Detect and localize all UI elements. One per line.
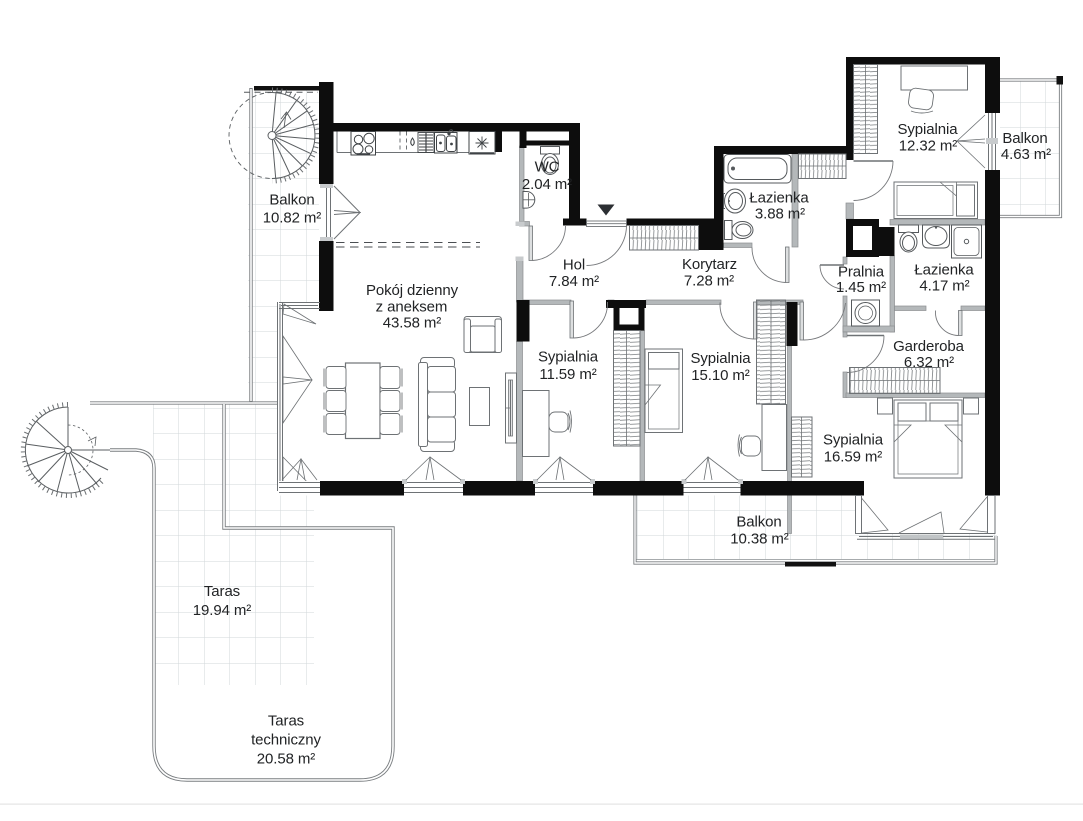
- svg-text:10.82 m²: 10.82 m²: [263, 209, 321, 226]
- svg-text:Sypialnia: Sypialnia: [691, 350, 752, 367]
- svg-text:Sypialnia: Sypialnia: [898, 121, 959, 138]
- svg-text:Balkon: Balkon: [736, 514, 781, 531]
- svg-text:Sypialnia: Sypialnia: [538, 349, 599, 366]
- svg-text:4.63 m²: 4.63 m²: [1001, 146, 1051, 163]
- svg-text:10.38 m²: 10.38 m²: [730, 531, 788, 548]
- svg-text:20.58 m²: 20.58 m²: [257, 751, 315, 768]
- svg-text:2.04 m²: 2.04 m²: [522, 176, 572, 193]
- svg-text:WC: WC: [535, 159, 560, 176]
- svg-text:Pokój dzienny: Pokój dzienny: [366, 282, 459, 299]
- svg-text:Hol: Hol: [563, 257, 585, 274]
- svg-text:Taras: Taras: [204, 583, 240, 600]
- svg-text:techniczny: techniczny: [251, 732, 321, 749]
- svg-text:12.32 m²: 12.32 m²: [899, 138, 957, 155]
- svg-text:z aneksem: z aneksem: [376, 298, 448, 315]
- svg-text:Korytarz: Korytarz: [682, 256, 737, 273]
- svg-text:6.32 m²: 6.32 m²: [904, 354, 954, 371]
- svg-text:Taras: Taras: [268, 713, 304, 730]
- svg-text:4.17 m²: 4.17 m²: [919, 278, 969, 295]
- svg-text:Łazienka: Łazienka: [749, 190, 809, 207]
- svg-text:Balkon: Balkon: [269, 192, 314, 209]
- svg-text:19.94 m²: 19.94 m²: [193, 602, 251, 619]
- svg-text:Pralnia: Pralnia: [838, 264, 885, 281]
- svg-text:Garderoba: Garderoba: [893, 338, 965, 355]
- svg-text:Balkon: Balkon: [1002, 130, 1047, 147]
- svg-text:Sypialnia: Sypialnia: [823, 432, 884, 449]
- svg-text:7.84 m²: 7.84 m²: [549, 273, 599, 290]
- svg-text:16.59 m²: 16.59 m²: [824, 449, 882, 466]
- svg-text:7.28 m²: 7.28 m²: [684, 273, 734, 290]
- svg-text:Łazienka: Łazienka: [914, 262, 974, 279]
- svg-text:3.88 m²: 3.88 m²: [755, 206, 805, 223]
- svg-text:15.10 m²: 15.10 m²: [691, 367, 749, 384]
- svg-text:11.59 m²: 11.59 m²: [539, 366, 596, 383]
- svg-text:43.58 m²: 43.58 m²: [383, 315, 441, 332]
- svg-text:1.45 m²: 1.45 m²: [836, 279, 886, 296]
